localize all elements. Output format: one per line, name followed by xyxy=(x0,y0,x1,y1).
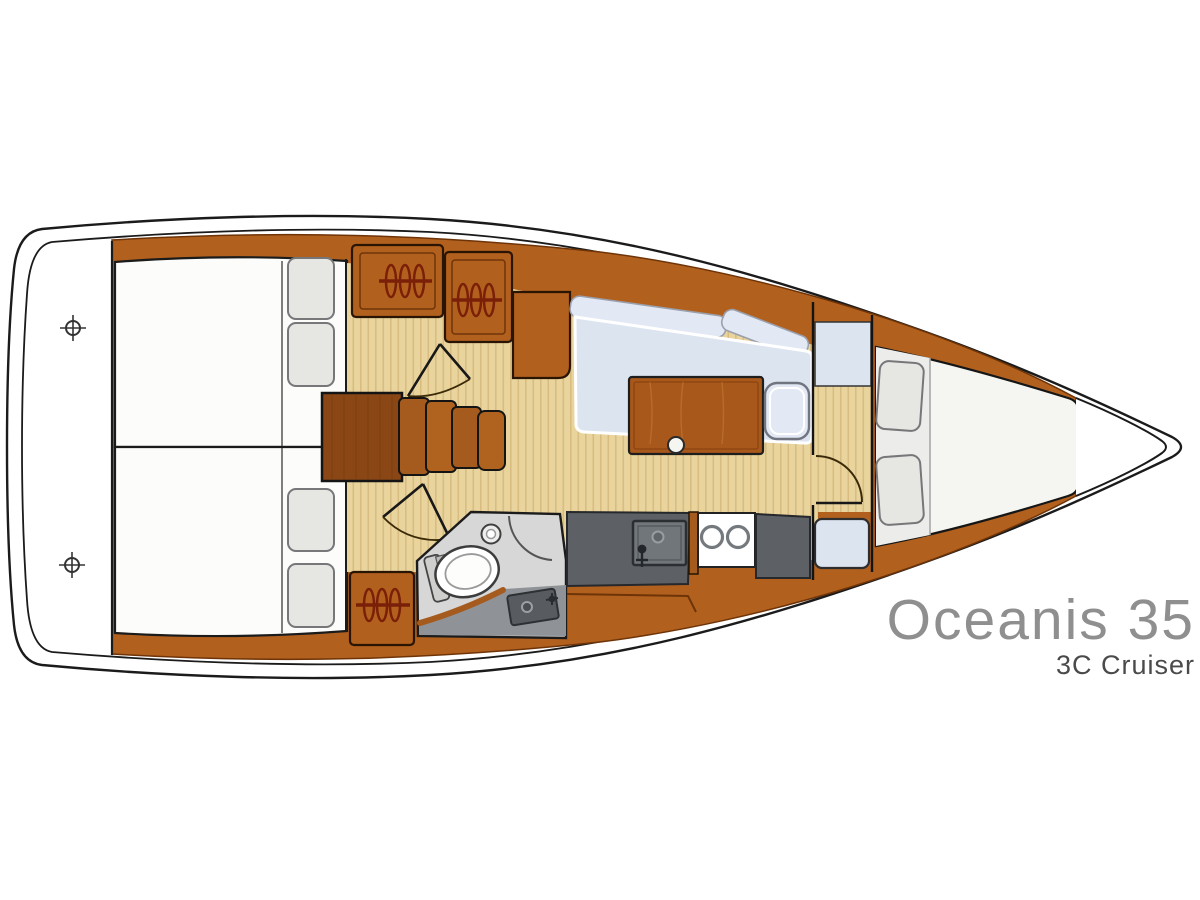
round-sink-drain xyxy=(487,530,496,539)
stove xyxy=(698,513,755,567)
burner-icon xyxy=(702,527,723,548)
aft-cabin-starboard xyxy=(115,447,347,636)
hanging-locker xyxy=(352,245,443,317)
cup-holder-icon xyxy=(668,437,684,453)
nav-seat xyxy=(815,519,869,568)
aft-cabin-port xyxy=(115,257,347,447)
burner-icon xyxy=(728,527,749,548)
galley-counter-fwd xyxy=(756,514,810,578)
hanging-locker xyxy=(350,572,414,645)
title-block: Oceanis 35 3C Cruiser xyxy=(887,592,1195,679)
vestibule-locker xyxy=(815,322,871,386)
companionway xyxy=(322,393,505,481)
forward-cabin xyxy=(876,347,1078,546)
vanity-basin xyxy=(507,588,559,625)
storage-cabinet xyxy=(513,292,570,378)
galley-sink xyxy=(633,521,686,567)
hanging-locker xyxy=(445,252,512,342)
counter-divider xyxy=(689,512,698,574)
companionway-step xyxy=(478,411,505,470)
boat-layout-plan: Oceanis 35 3C Cruiser xyxy=(0,0,1200,900)
companionway-step xyxy=(399,398,429,475)
pillow xyxy=(288,258,334,319)
companionway-step xyxy=(452,407,481,468)
pillow xyxy=(288,489,334,551)
pillow xyxy=(876,361,925,432)
pillow xyxy=(288,564,334,627)
boat-version-name: 3C Cruiser xyxy=(887,652,1195,679)
sink-drain xyxy=(653,532,664,543)
pillow xyxy=(288,323,334,386)
deck-plan-drawing xyxy=(0,0,1200,900)
salon-table xyxy=(629,377,763,454)
basin-drain xyxy=(522,602,532,612)
boat-model-name: Oceanis 35 xyxy=(887,592,1195,649)
engine-box xyxy=(322,393,402,481)
pillow xyxy=(876,455,925,526)
